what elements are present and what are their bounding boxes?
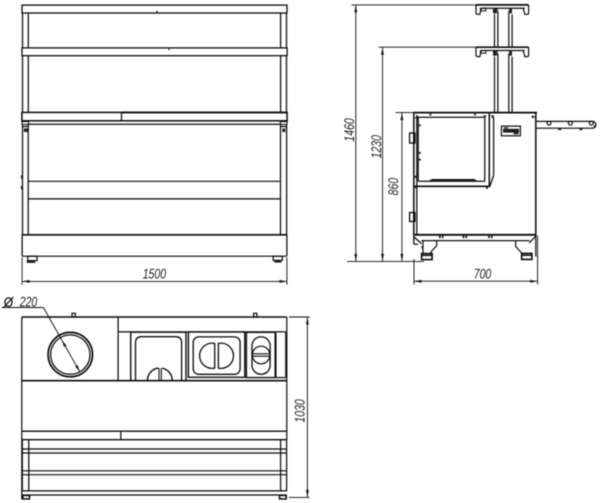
svg-text:700: 700 — [474, 265, 492, 281]
svg-text:1030: 1030 — [291, 399, 307, 423]
svg-text:1230: 1230 — [368, 135, 384, 159]
svg-text:1460: 1460 — [341, 118, 357, 142]
svg-text:220: 220 — [19, 293, 37, 309]
svg-text:860: 860 — [385, 178, 401, 196]
svg-text:1500: 1500 — [143, 265, 167, 281]
